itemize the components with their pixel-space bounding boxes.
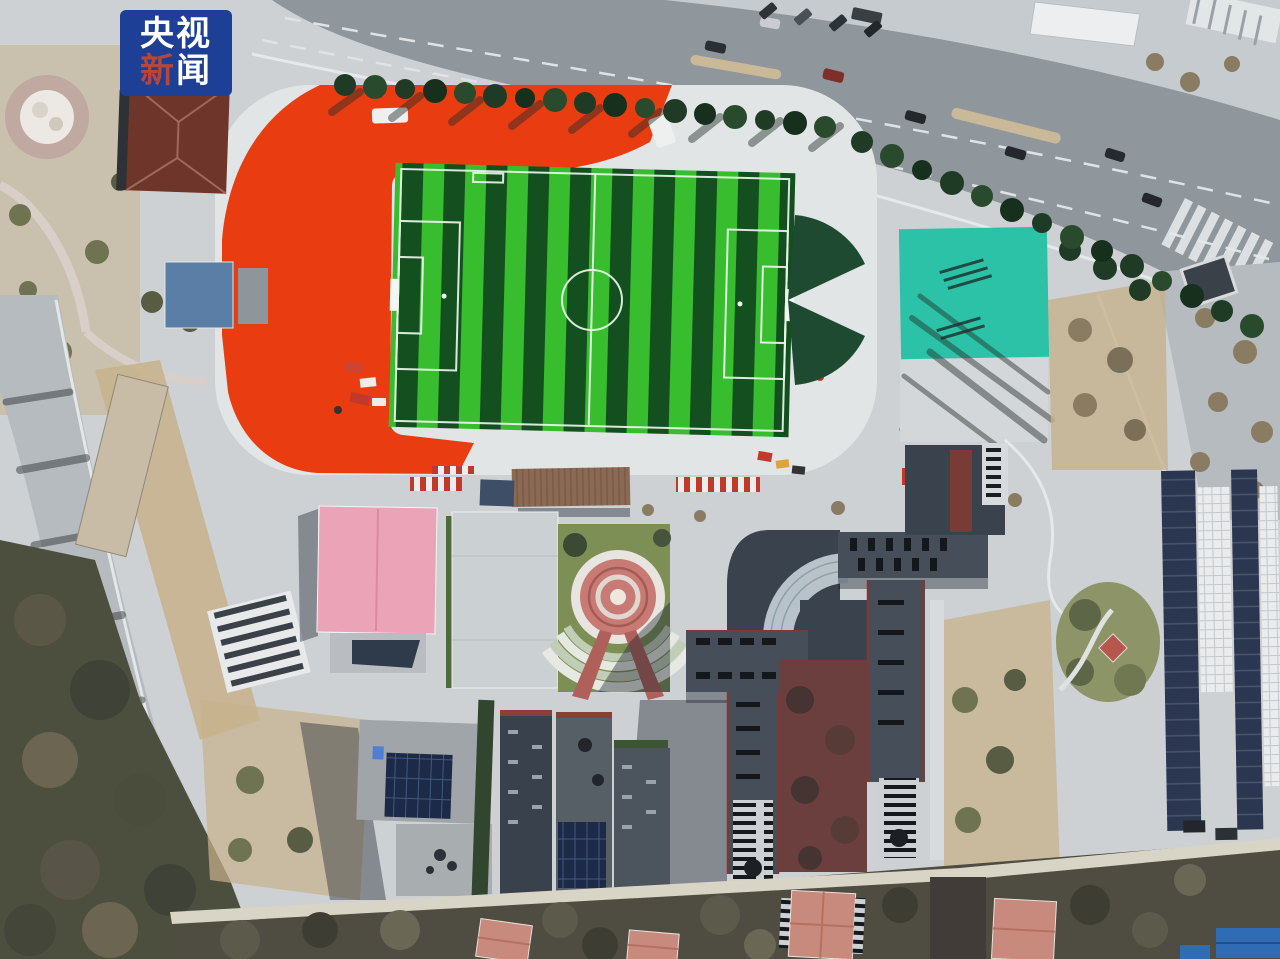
north-wing: [838, 532, 988, 578]
circular-plaza: [546, 524, 690, 700]
greenhouse-white-row: [1197, 487, 1233, 693]
small-gray-building: [238, 268, 268, 324]
striped-wall: [676, 477, 760, 492]
hedge: [446, 516, 452, 688]
walkway: [930, 600, 944, 860]
gray-hall: [446, 512, 558, 688]
watermark-line1: 央视: [140, 16, 212, 53]
building-e: [614, 748, 670, 894]
stairwell-south: [733, 800, 773, 892]
soccer-field: [387, 163, 798, 437]
greenhouse-dark-row: [1161, 470, 1201, 831]
watermark-line2: 新闻: [140, 53, 212, 90]
plaza-center-flower: [610, 589, 626, 605]
dark-residential: [930, 877, 986, 959]
striped-barrier: [432, 466, 474, 474]
ramp: [480, 479, 515, 506]
solar-array: [384, 753, 452, 819]
solar-array: [558, 822, 606, 888]
east-garden: [1056, 582, 1160, 702]
striped-wall: [410, 477, 462, 491]
blue-roof-building: [165, 262, 233, 328]
goal-left: [390, 279, 399, 311]
fitness-court: [899, 227, 1052, 448]
aerial-campus-photo: 央视 新闻: [0, 0, 1280, 959]
flat-gray-roof: [452, 512, 558, 688]
gym-entrance-canopy: [352, 640, 420, 668]
rock-garden-stones: [20, 90, 74, 144]
aerial-scene-canvas: [0, 0, 1280, 959]
east-wing: [867, 580, 925, 782]
building-c: [500, 716, 552, 896]
cctv-news-watermark: 央视 新闻: [120, 10, 232, 96]
watermark-accent-char: 新: [140, 51, 176, 91]
watermark-line2-rest: 闻: [176, 51, 212, 91]
